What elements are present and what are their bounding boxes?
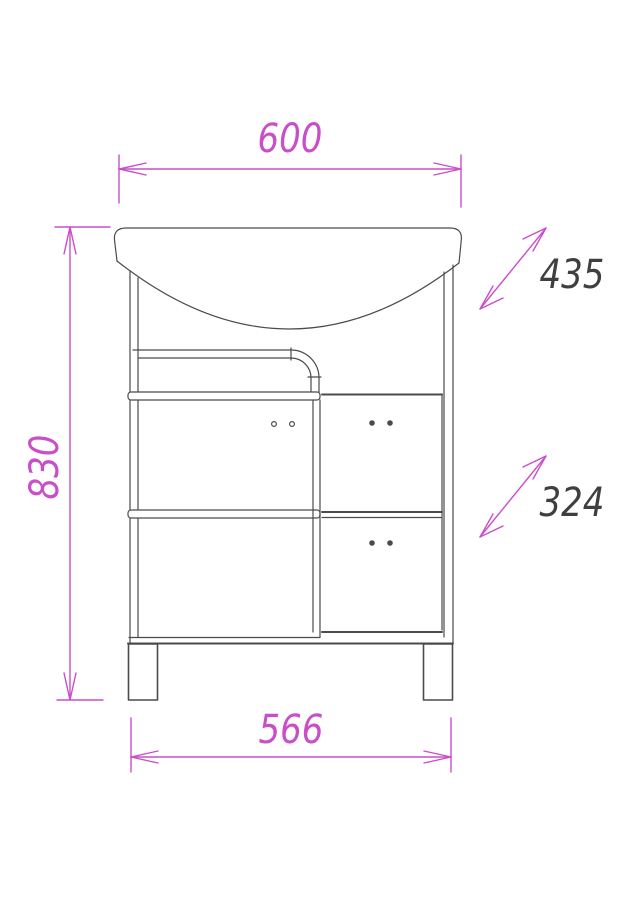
dim-label-top-width: 600 [231, 117, 350, 161]
right-foot [424, 644, 453, 700]
dim-label-sink-depth: 435 [521, 253, 623, 297]
cabinet-bottom [128, 638, 453, 644]
vanity-technical-drawing: 600 830 435 324 566 [0, 0, 636, 900]
drawer-box [322, 394, 442, 632]
shelf-band-top [128, 392, 320, 400]
right-side-panel [444, 265, 453, 643]
sink-basin-curve [117, 261, 459, 329]
dim-label-cabinet-depth: 324 [521, 481, 623, 525]
shelf-bands [128, 392, 320, 518]
dim-label-height: 830 [23, 408, 67, 527]
dim-label-base-width: 566 [232, 708, 351, 752]
left-door-knobs [272, 422, 295, 427]
towel-rail [133, 348, 321, 392]
drawer2-knobs [370, 541, 392, 545]
sink-rim [114, 228, 461, 263]
vanity-outline [114, 228, 461, 700]
left-side-panel [130, 271, 138, 643]
left-foot [129, 644, 158, 700]
drawer1-knobs [370, 421, 392, 425]
dim-top-width [119, 155, 461, 207]
shelf-band-bottom [128, 510, 320, 518]
